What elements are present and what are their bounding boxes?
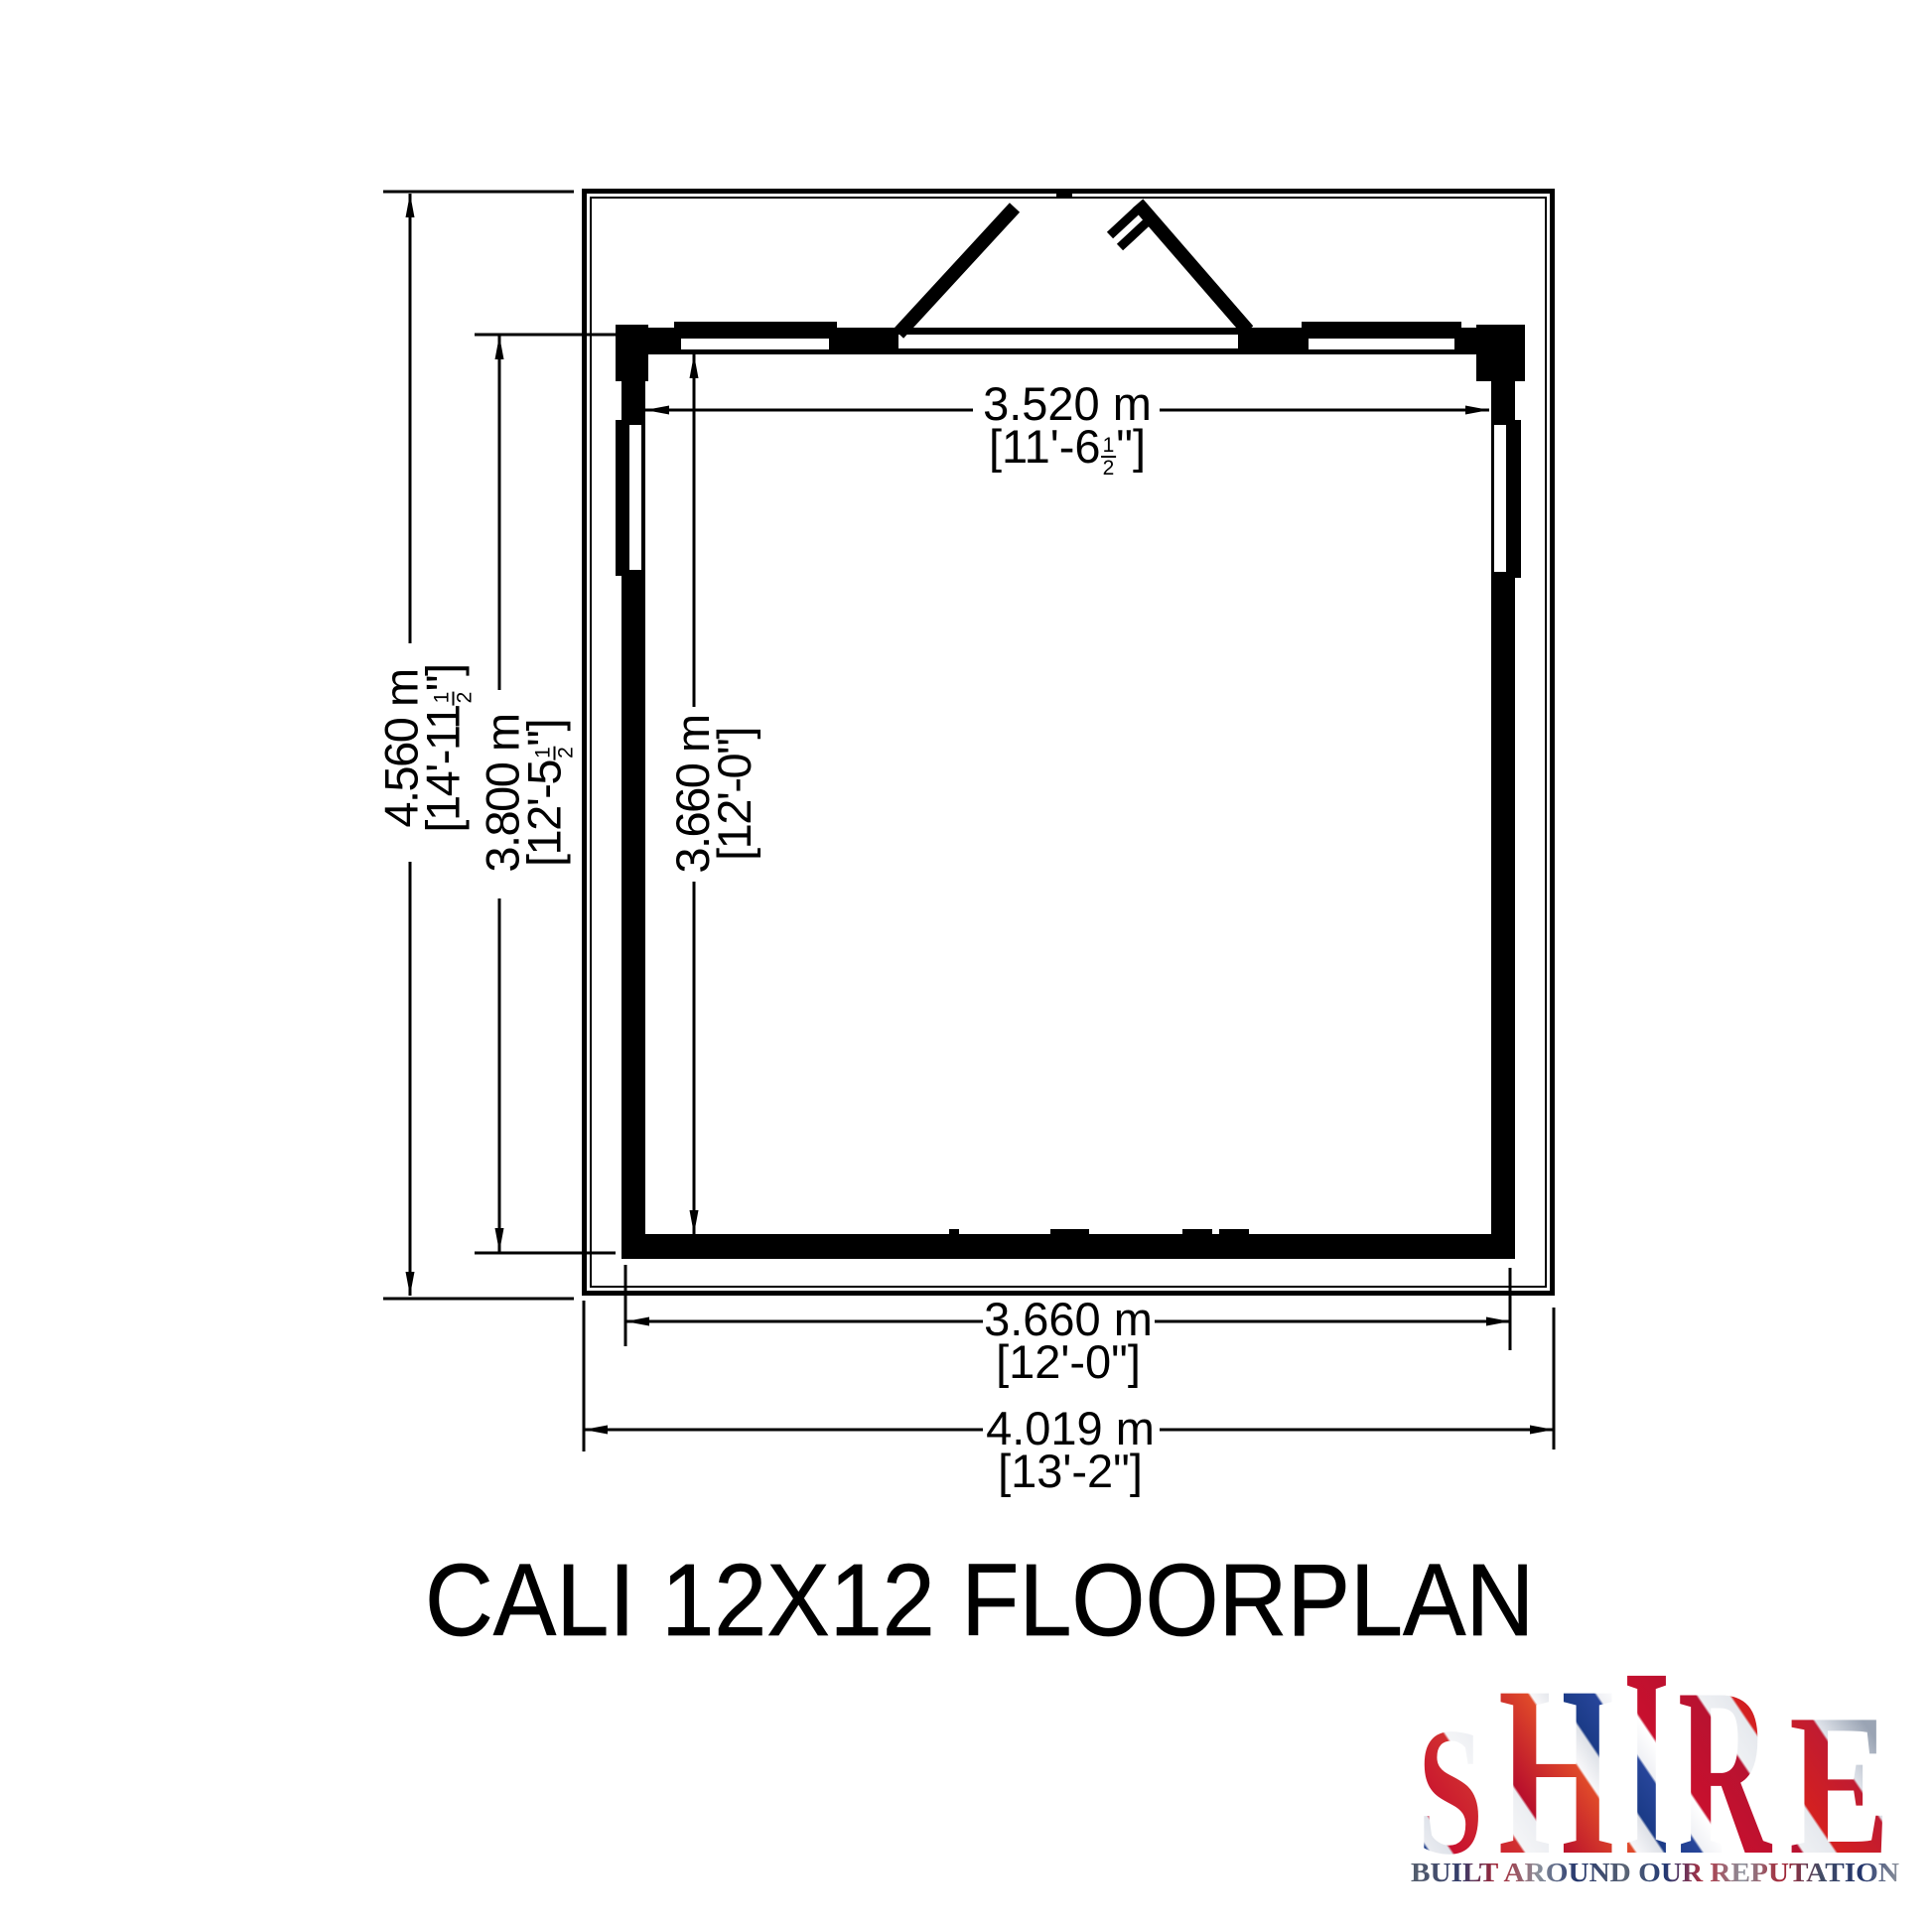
svg-text:BUILT AROUND OUR REPUTATION: BUILT AROUND OUR REPUTATION: [1411, 1858, 1900, 1887]
